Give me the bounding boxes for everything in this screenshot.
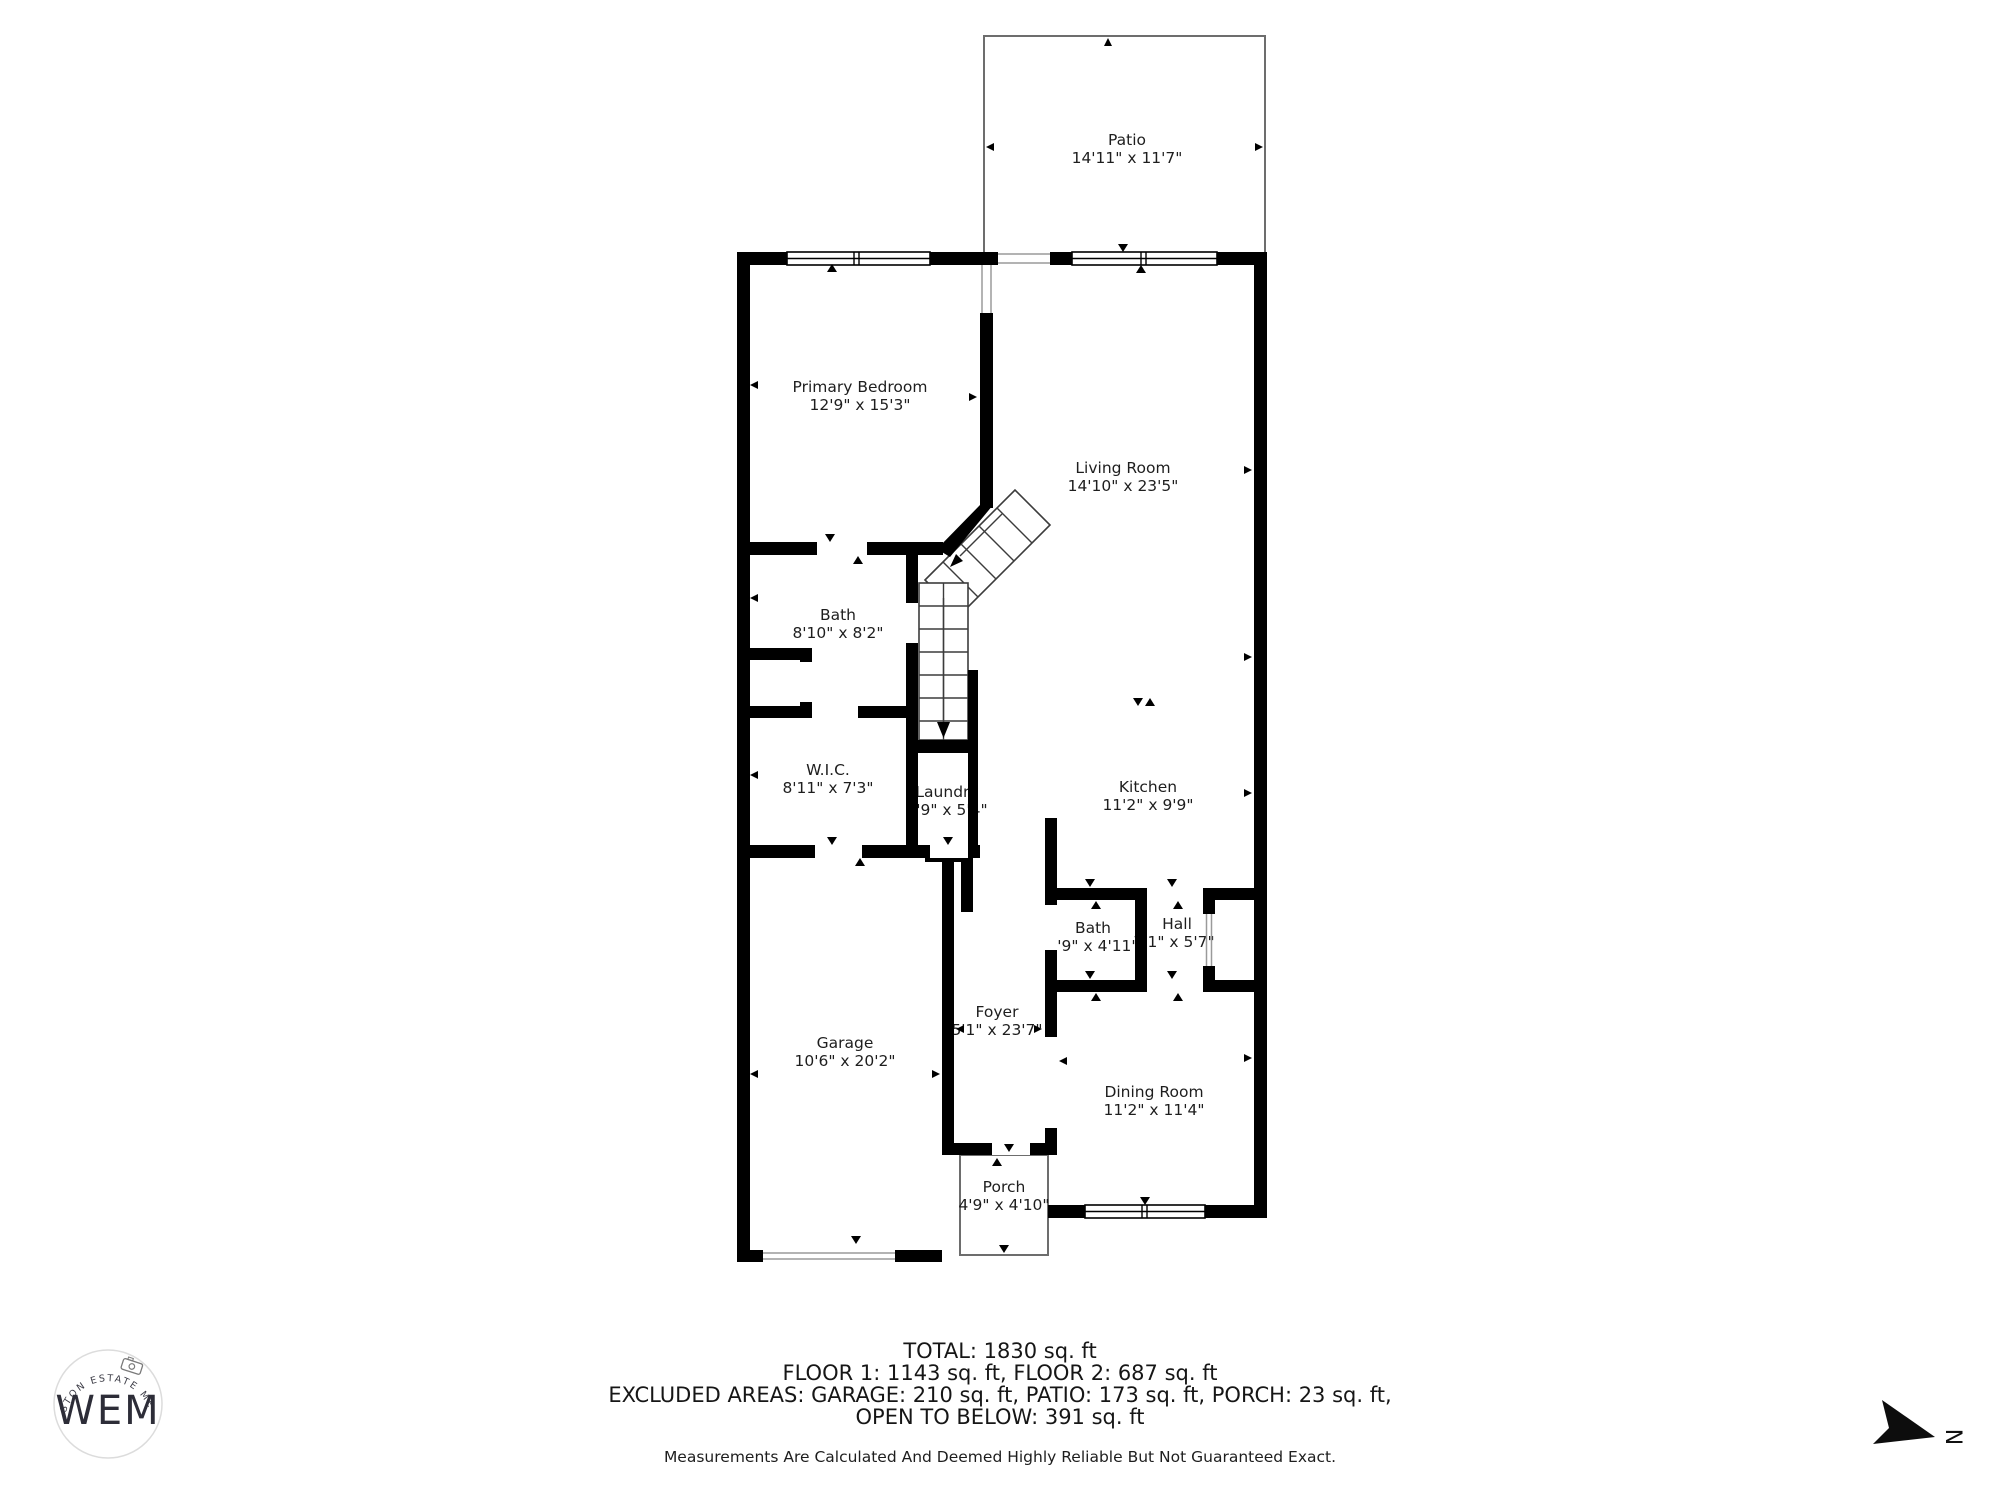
wall-hall-closet-stub-bottom [1203, 966, 1215, 992]
tick-bath-main-bottom-a [1085, 971, 1095, 979]
tick-bath-main-bottom-b [1091, 993, 1101, 1001]
laundry-door-opening [930, 845, 968, 858]
room-dims-garage: 10'6" x 20'2" [795, 1052, 896, 1070]
room-dims-dining-room: 11'2" x 11'4" [1104, 1101, 1205, 1119]
area-summary: TOTAL: 1830 sq. ft FLOOR 1: 1143 sq. ft,… [608, 1339, 1391, 1466]
tick-hall-bottom-a [1167, 971, 1177, 979]
tick-patio-door-b [1136, 265, 1146, 273]
tick-hall-top-a [1167, 879, 1177, 887]
tick-hall-bottom-b [1173, 993, 1183, 1001]
tick-garage-right [932, 1070, 940, 1078]
room-label-dining-room: Dining Room [1104, 1083, 1203, 1101]
tick-bedroom-door-a [825, 534, 835, 542]
tick-hall-top-b [1173, 901, 1183, 909]
wall-bath-main-top [1045, 888, 1147, 900]
room-label-kitchen: Kitchen [1119, 778, 1177, 796]
floor-areas-text: FLOOR 1: 1143 sq. ft, FLOOR 2: 687 sq. f… [783, 1361, 1218, 1385]
bath-upper-door-opening [906, 603, 918, 643]
room-dims-foyer: 5'1" x 23'7" [951, 1021, 1042, 1039]
tick-right-kitchen [1244, 653, 1252, 661]
tick-bedroom-right [969, 393, 977, 401]
wall-hall-closet-top [1209, 888, 1254, 900]
wall-bath-main-right [1135, 888, 1147, 992]
tick-left-wic [750, 771, 758, 779]
room-label-bath-upper: Bath [820, 606, 856, 624]
tick-laundry-door [943, 837, 953, 845]
room-dims-porch: 4'9" x 4'10" [958, 1196, 1049, 1214]
tick-wic-door-a [827, 837, 837, 845]
tick-dining-window [1140, 1197, 1150, 1205]
tick-right-dining [1244, 1054, 1252, 1062]
tick-garage-door [851, 1236, 861, 1244]
tick-left-garage [750, 1070, 758, 1078]
room-dims-bath-upper: 8'10" x 8'2" [792, 624, 883, 642]
total-area-text: TOTAL: 1830 sq. ft [902, 1339, 1096, 1363]
room-label-garage: Garage [817, 1034, 874, 1052]
room-label-living-room: Living Room [1075, 459, 1170, 477]
outdoor-areas [960, 36, 1265, 1255]
room-dims-kitchen: 11'2" x 9'9" [1102, 796, 1193, 814]
wall-hall-closet-bottom [1209, 980, 1254, 992]
tick-bath-main-top-b [1091, 901, 1101, 909]
camera-icon [121, 1356, 144, 1375]
tick-bath-main-top-a [1085, 879, 1095, 887]
north-arrow-icon [1873, 1400, 1935, 1444]
room-dims-bath-main: 4'9" x 4'11" [1047, 937, 1138, 955]
compass: N [1873, 1400, 1965, 1445]
tick-bedroom-door-b [853, 556, 863, 564]
room-dims-patio: 14'11" x 11'7" [1072, 149, 1183, 167]
bedroom-door-opening [817, 542, 867, 555]
room-label-patio: Patio [1108, 131, 1146, 149]
room-label-porch: Porch [983, 1178, 1026, 1196]
wall-bath-main-bottom [1045, 980, 1147, 992]
wall-nook-right [961, 850, 973, 912]
tick-kitchen-a [1133, 698, 1143, 706]
bath-closet-door-opening [800, 662, 812, 702]
room-dims-living-room: 14'10" x 23'5" [1068, 477, 1179, 495]
tick-right-living [1244, 466, 1252, 474]
room-label-foyer: Foyer [976, 1003, 1020, 1021]
room-labels: Patio 14'11" x 11'7" Primary Bedroom 12'… [782, 131, 1214, 1214]
floor-plan-page: Patio 14'11" x 11'7" Primary Bedroom 12'… [0, 0, 2000, 1500]
room-dims-wic: 8'11" x 7'3" [782, 779, 873, 797]
wic-door-opening [815, 845, 862, 858]
wem-logo: WESTON ESTATE MEDIA WEM [0, 0, 162, 1458]
tick-left-bedroom [750, 381, 758, 389]
room-label-bath-main: Bath [1075, 919, 1111, 937]
logo-arc-text: WESTON ESTATE MEDIA [0, 0, 157, 1414]
room-label-wic: W.I.C. [806, 761, 850, 779]
wall-wic-right [906, 716, 918, 858]
garage-door-opening [763, 1250, 895, 1262]
room-dims-primary-bedroom: 12'9" x 15'3" [810, 396, 911, 414]
wall-kitchen-left [1045, 818, 1057, 888]
open-to-below-text: OPEN TO BELOW: 391 sq. ft [856, 1405, 1145, 1429]
tick-kitchen-b [1145, 698, 1155, 706]
bath-main-door-opening [1045, 905, 1057, 950]
tick-dining-opening [1059, 1057, 1067, 1065]
wall-bedroom-living [980, 313, 993, 508]
staircase [919, 490, 1050, 740]
wall-stair-end [915, 740, 972, 753]
wall-hall-closet-stub-top [1203, 888, 1215, 914]
floor-plan-canvas: Patio 14'11" x 11'7" Primary Bedroom 12'… [0, 0, 2000, 1500]
wall-left [737, 252, 750, 1262]
wall-foyer-dining-upper [1045, 992, 1057, 1037]
excluded-areas-text: EXCLUDED AREAS: GARAGE: 210 sq. ft, PATI… [608, 1383, 1391, 1407]
wall-porch-top-left [942, 1143, 992, 1155]
disclaimer-text: Measurements Are Calculated And Deemed H… [664, 1448, 1336, 1466]
north-label: N [1940, 1429, 1965, 1445]
wall-right [1254, 252, 1267, 1218]
room-label-primary-bedroom: Primary Bedroom [793, 378, 928, 396]
tick-right-kitchen2 [1244, 789, 1252, 797]
wall-foyer-dining-stub [1045, 1128, 1057, 1155]
logo-initials: WEM [55, 1388, 160, 1434]
wall-laundry-right [968, 670, 978, 845]
wall-garage-foyer [942, 862, 954, 1155]
room-label-hall: Hall [1162, 915, 1192, 933]
tick-wic-door-b [855, 858, 865, 866]
bath-wic-door-opening [812, 706, 858, 718]
tick-left-bath [750, 594, 758, 602]
